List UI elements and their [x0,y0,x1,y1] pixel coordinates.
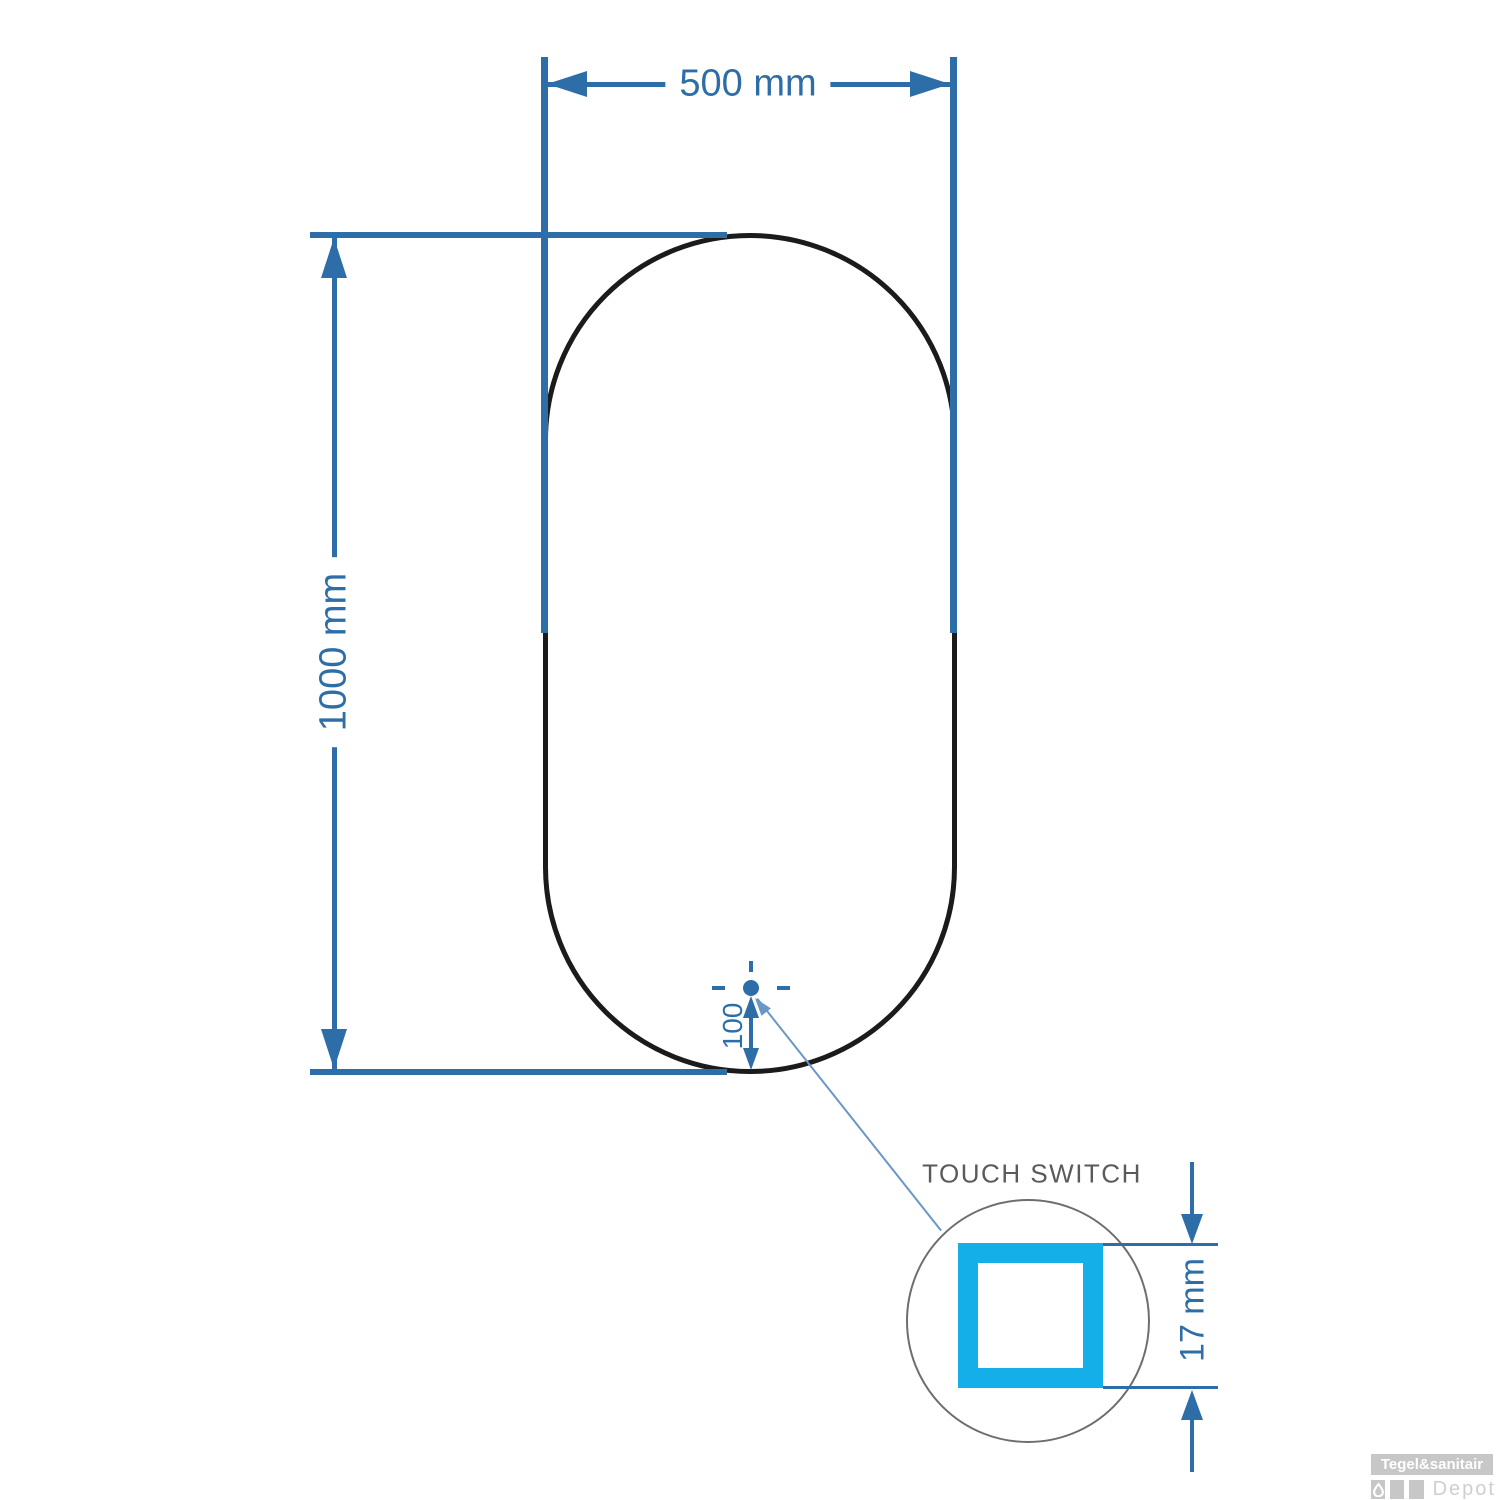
logo-square [1409,1480,1423,1499]
brand-logo-bar: Tegel&sanitair [1371,1454,1493,1475]
width-extension-line-left [541,57,548,633]
touch-switch-symbol [958,1243,1103,1388]
switch-size-arrow-down-icon [1181,1214,1203,1244]
center-mark-dash-right [777,986,790,990]
offset-arrow-down-icon [743,1048,759,1070]
touch-switch-point [743,980,759,996]
height-extension-line-top [310,232,727,238]
water-drop-icon [1371,1480,1385,1499]
switch-size-arrow-up-icon [1181,1390,1203,1420]
width-extension-line-right [950,57,957,633]
offset-dimension-label: 100 [717,1003,749,1050]
height-arrow-down-icon [321,1029,347,1069]
switch-size-label: 17 mm [1174,1258,1213,1362]
switch-size-dimension-line-top [1190,1162,1194,1216]
width-arrow-right-icon [910,71,950,97]
logo-square [1390,1480,1404,1499]
height-extension-line-bottom [310,1069,727,1075]
mirror-outline [543,233,957,1074]
dimension-diagram: 500 mm 1000 mm 100 TOUCH SWITCH 17 mm Te… [0,0,1500,1500]
touch-switch-label: TOUCH SWITCH [922,1159,1142,1190]
center-mark-dash-left [712,986,725,990]
height-arrow-up-icon [321,238,347,278]
brand-logo-subtext: Depot [1433,1479,1496,1499]
width-dimension-label: 500 mm [665,63,830,106]
switch-size-tick-bottom [1103,1386,1218,1389]
brand-logo-text: Tegel&sanitair [1381,1457,1483,1472]
height-dimension-label: 1000 mm [313,557,356,747]
brand-logo: Tegel&sanitair Depot [1371,1454,1496,1499]
switch-size-dimension-line-bottom [1190,1418,1194,1472]
brand-logo-row: Depot [1371,1479,1496,1499]
center-mark-dash-top [749,961,753,972]
width-arrow-left-icon [547,71,587,97]
